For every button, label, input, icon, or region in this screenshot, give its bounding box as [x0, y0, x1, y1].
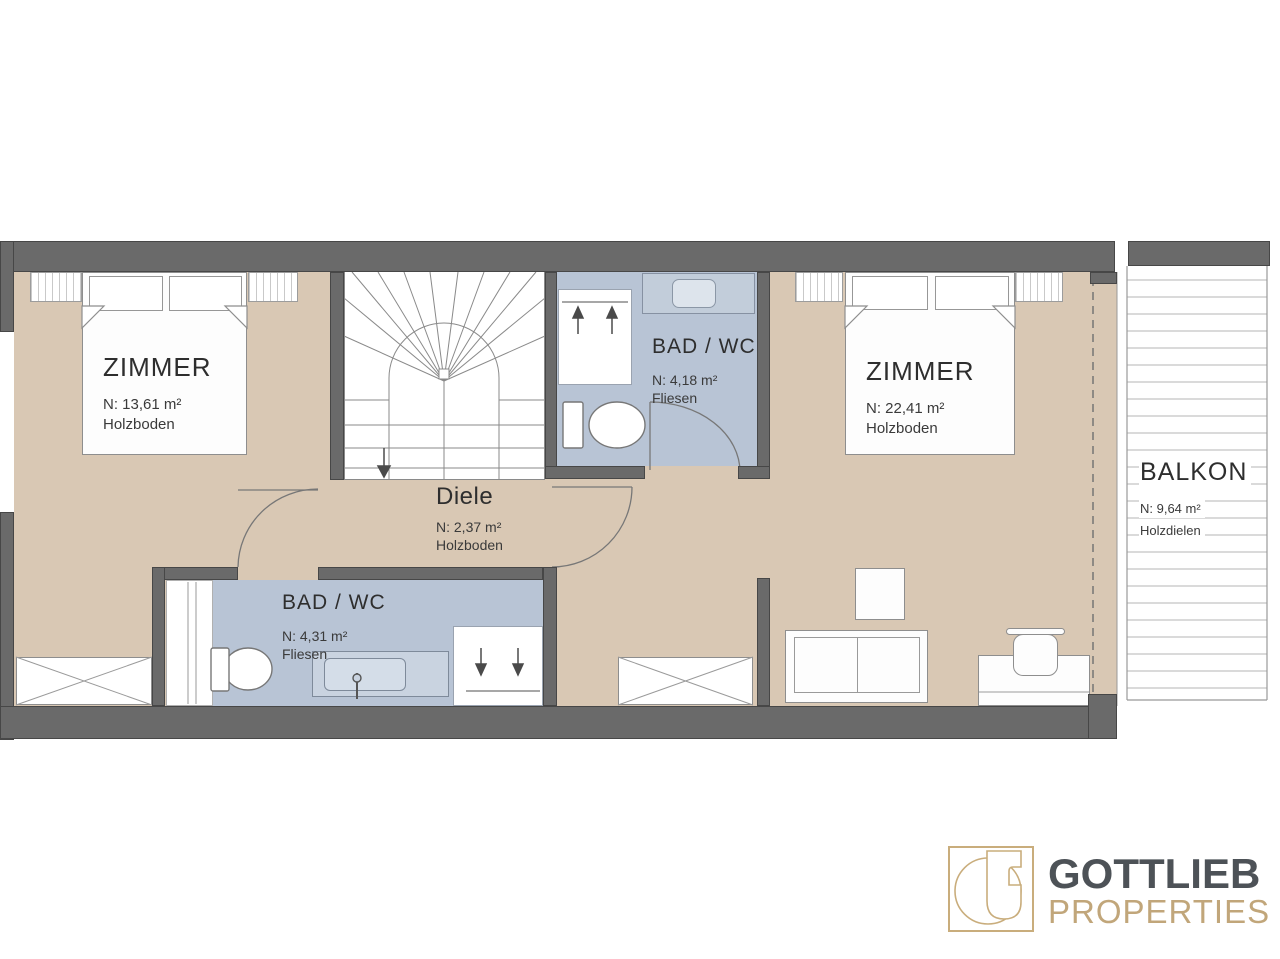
washbasin-bowl — [672, 279, 716, 308]
logo-company-name: GOTTLIEB — [1048, 854, 1270, 894]
wall-bathroom-top-right — [757, 272, 770, 479]
label-bad-wc-top: BAD / WC N: 4,18 m² Fliesen — [652, 334, 756, 407]
room-floor: Fliesen — [652, 389, 756, 407]
side-table — [855, 568, 905, 620]
room-name: BALKON — [1139, 458, 1251, 487]
pillow — [935, 276, 1009, 310]
wall-stub-middle — [543, 567, 557, 706]
room-floor: Fliesen — [282, 645, 386, 663]
wall-bathroom-top-left — [545, 272, 557, 479]
bathroom-bottom-door — [166, 580, 213, 706]
room-area: N: 4,18 m² — [652, 371, 756, 389]
label-bad-wc-bottom: BAD / WC N: 4,31 m² Fliesen — [282, 590, 386, 663]
wall-corner-top-right — [1090, 272, 1117, 284]
desk-chair — [1013, 634, 1058, 676]
pillow — [89, 276, 163, 311]
gottlieb-logo: GOTTLIEB PROPERTIES — [947, 845, 1270, 933]
room-name: ZIMMER — [866, 356, 975, 386]
room-area: N: 9,64 m² — [1139, 500, 1205, 518]
logo-division-name: PROPERTIES — [1048, 895, 1270, 928]
label-diele: Diele N: 2,37 m² Holzboden — [436, 483, 503, 554]
room-floor: Holzboden — [866, 419, 975, 439]
sofa — [785, 630, 928, 703]
shower-bottom — [453, 626, 543, 706]
wall-stub-left — [152, 567, 165, 706]
pillow — [169, 276, 242, 311]
gottlieb-logo-mark — [947, 845, 1035, 933]
room-name: BAD / WC — [282, 590, 386, 615]
room-name: ZIMMER — [103, 352, 212, 382]
washbasin-vanity — [642, 273, 755, 314]
room-area: N: 13,61 m² — [103, 395, 212, 415]
label-zimmer-right: ZIMMER N: 22,41 m² Holzboden — [866, 356, 975, 439]
room-area: N: 4,31 m² — [282, 627, 386, 645]
wall-left-upper — [0, 241, 14, 332]
label-balkon: BALKON N: 9,64 m² Holzdielen — [1139, 458, 1251, 540]
wall-stub-right — [757, 578, 770, 706]
pillow — [852, 276, 928, 310]
shower-top — [558, 289, 632, 385]
label-zimmer-left: ZIMMER N: 13,61 m² Holzboden — [103, 352, 212, 435]
window-right-1 — [795, 272, 843, 302]
wall-bathroom-top-bottom-b — [738, 466, 770, 479]
logo-monogram — [987, 851, 1021, 919]
wall-bottom — [0, 706, 1117, 739]
wardrobe-left — [16, 657, 152, 705]
wardrobe-right — [618, 657, 753, 705]
staircase-floor — [344, 272, 545, 480]
room-name: Diele — [436, 483, 503, 511]
window-left-2 — [248, 272, 298, 302]
room-floor: Holzboden — [436, 536, 503, 554]
wall-hall-b — [318, 567, 543, 580]
room-area: N: 2,37 m² — [436, 518, 503, 536]
window-left-1 — [30, 272, 82, 302]
wall-top — [12, 241, 1115, 272]
wall-stairs-left — [330, 272, 344, 480]
room-area: N: 22,41 m² — [866, 399, 975, 419]
floor-plan: ZIMMER N: 13,61 m² Holzboden BAD / WC N:… — [0, 0, 1280, 959]
room-floor: Holzboden — [103, 415, 212, 435]
wall-bathroom-top-bottom-a — [545, 466, 645, 479]
wall-corner-bottom-right — [1088, 694, 1117, 739]
wall-balcony-top — [1128, 241, 1270, 266]
room-floor: Holzdielen — [1139, 522, 1205, 540]
room-name: BAD / WC — [652, 334, 756, 359]
logo-text: GOTTLIEB PROPERTIES — [1048, 845, 1270, 928]
window-right-2 — [1015, 272, 1063, 302]
sofa-divider — [857, 637, 858, 693]
